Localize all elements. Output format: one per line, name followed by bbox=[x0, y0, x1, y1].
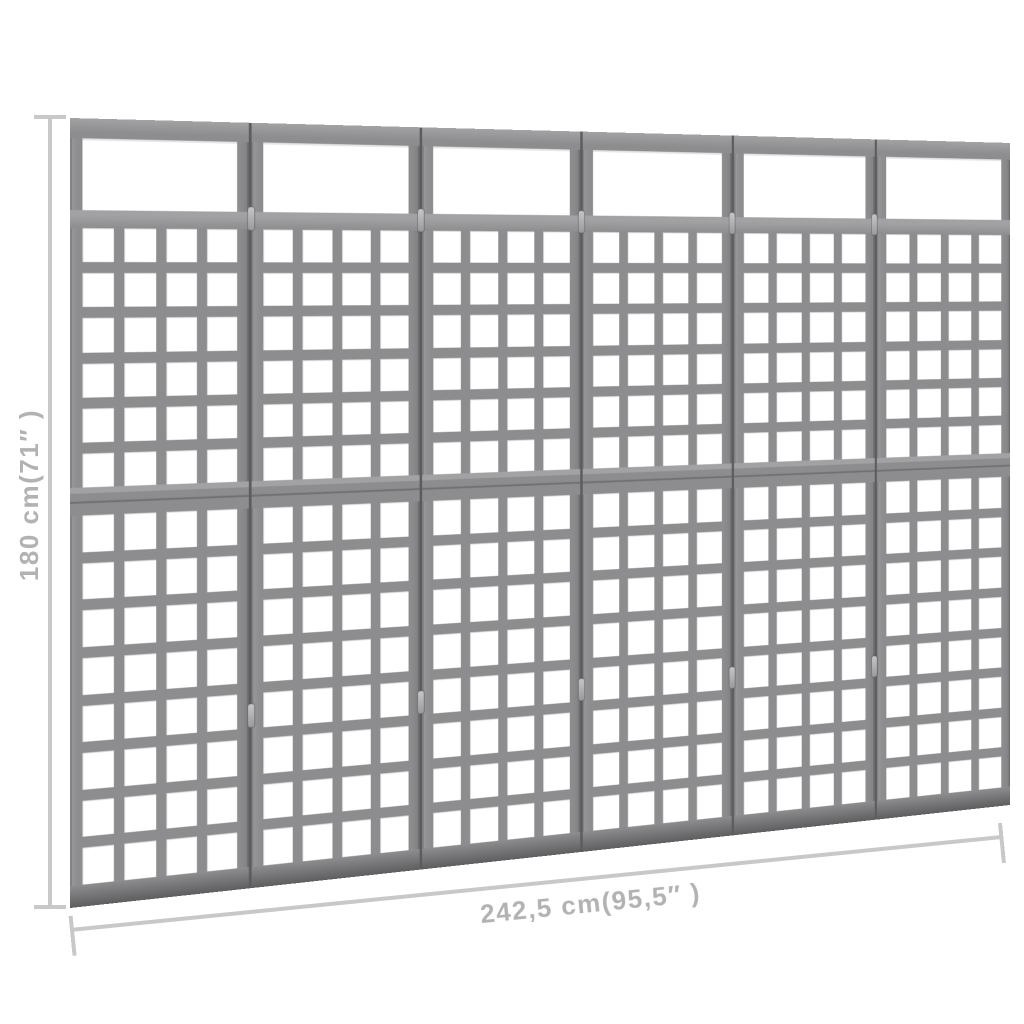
lattice-hole bbox=[842, 688, 866, 722]
lattice-hole bbox=[82, 273, 114, 307]
lattice-hole bbox=[979, 517, 1002, 549]
panel-upper-lattice bbox=[744, 233, 866, 463]
lattice-hole bbox=[697, 393, 722, 424]
lattice-hole bbox=[809, 525, 833, 558]
lattice-hole bbox=[507, 356, 534, 388]
lattice-hole bbox=[507, 315, 534, 347]
lattice-hole bbox=[979, 637, 1002, 670]
lattice-hole bbox=[697, 313, 722, 344]
lattice-hole bbox=[433, 810, 461, 847]
panel-open-section bbox=[744, 154, 866, 219]
lattice-hole bbox=[948, 235, 971, 264]
lattice-hole bbox=[628, 577, 654, 612]
lattice-hole bbox=[207, 740, 237, 778]
lattice-hole bbox=[917, 641, 940, 674]
lattice-hole bbox=[697, 233, 722, 264]
lattice-hole bbox=[433, 677, 461, 713]
lattice-hole bbox=[303, 687, 332, 724]
lattice-hole bbox=[809, 608, 833, 642]
lattice-hole bbox=[948, 349, 971, 378]
lattice-hole bbox=[125, 700, 156, 739]
lattice-hole bbox=[470, 399, 498, 431]
panel-upper-lattice bbox=[886, 234, 1001, 457]
lattice-hole bbox=[543, 756, 570, 792]
lattice-hole bbox=[593, 396, 619, 428]
lattice-hole bbox=[809, 691, 833, 725]
lattice-hole bbox=[628, 706, 654, 741]
lattice-hole bbox=[125, 653, 156, 691]
lattice-hole bbox=[777, 233, 802, 263]
lattice-hole bbox=[809, 649, 833, 683]
lattice-hole bbox=[543, 273, 570, 304]
lattice-hole bbox=[543, 314, 570, 346]
lattice-hole bbox=[380, 591, 408, 627]
panel-open-section bbox=[82, 138, 237, 211]
lattice-hole bbox=[166, 406, 197, 440]
lattice-hole bbox=[886, 428, 909, 458]
lattice-hole bbox=[342, 273, 371, 306]
lattice-hole bbox=[842, 606, 866, 639]
hinge-icon bbox=[729, 667, 734, 689]
lattice-hole bbox=[342, 402, 371, 435]
lattice-hole bbox=[543, 626, 570, 661]
lattice-hole bbox=[809, 773, 833, 807]
lattice-hole bbox=[543, 232, 570, 263]
lattice-hole bbox=[82, 408, 114, 443]
lattice-hole bbox=[470, 542, 498, 577]
lattice-hole bbox=[744, 487, 769, 520]
lattice-hole bbox=[663, 660, 689, 695]
lattice-hole bbox=[543, 539, 570, 574]
panel-rail bbox=[877, 219, 1010, 236]
lattice-hole bbox=[543, 800, 570, 836]
lattice-hole bbox=[125, 407, 156, 442]
lattice-hole bbox=[842, 729, 866, 763]
lattice-hole bbox=[342, 549, 371, 585]
lattice-hole bbox=[125, 318, 156, 352]
lattice-hole bbox=[777, 693, 802, 727]
lattice-hole bbox=[917, 479, 940, 511]
lattice-hole bbox=[628, 620, 654, 655]
panel-rail bbox=[70, 210, 249, 229]
lattice-hole bbox=[842, 483, 866, 516]
lattice-hole bbox=[303, 596, 332, 633]
lattice-hole bbox=[470, 586, 498, 622]
lattice-hole bbox=[809, 312, 833, 342]
lattice-hole bbox=[207, 786, 237, 825]
lattice-hole bbox=[470, 630, 498, 666]
lattice-hole bbox=[917, 520, 940, 552]
lattice-hole bbox=[433, 722, 461, 759]
lattice-hole bbox=[303, 823, 332, 861]
lattice-hole bbox=[166, 557, 197, 595]
panel-open-section bbox=[433, 146, 570, 215]
lattice-hole bbox=[809, 484, 833, 517]
lattice-hole bbox=[207, 694, 237, 732]
lattice-hole bbox=[593, 622, 619, 657]
lattice-hole bbox=[507, 398, 534, 430]
lattice-hole bbox=[207, 648, 237, 686]
lattice-hole bbox=[470, 498, 498, 533]
lattice-hole bbox=[263, 360, 293, 393]
lattice-hole bbox=[628, 791, 654, 827]
lattice-hole bbox=[593, 273, 619, 304]
panel-lower-lattice bbox=[744, 483, 866, 815]
lattice-hole bbox=[744, 654, 769, 688]
lattice-hole bbox=[842, 273, 866, 303]
lattice-hole bbox=[886, 562, 909, 595]
lattice-hole bbox=[663, 354, 689, 385]
lattice-hole bbox=[380, 681, 408, 718]
lattice-hole bbox=[917, 601, 940, 634]
lattice-hole bbox=[948, 311, 971, 340]
lattice-hole bbox=[886, 350, 909, 380]
lattice-hole bbox=[433, 399, 461, 432]
lattice-hole bbox=[82, 609, 114, 647]
lattice-hole bbox=[979, 757, 1002, 790]
lattice-hole bbox=[663, 313, 689, 344]
lattice-hole bbox=[263, 781, 293, 819]
lattice-hole bbox=[917, 273, 940, 302]
lattice-hole bbox=[948, 599, 971, 632]
lattice-hole bbox=[207, 833, 237, 872]
lattice-hole bbox=[380, 401, 408, 434]
lattice-hole bbox=[263, 827, 293, 865]
hinge-icon bbox=[248, 207, 254, 230]
lattice-hole bbox=[470, 231, 498, 263]
lattice-hole bbox=[470, 273, 498, 305]
lattice-hole bbox=[380, 726, 408, 763]
lattice-hole bbox=[809, 430, 833, 461]
lattice-hole bbox=[886, 725, 909, 759]
lattice-hole bbox=[303, 273, 332, 306]
panel-rail bbox=[422, 214, 580, 232]
lattice-hole bbox=[543, 438, 570, 470]
lattice-hole bbox=[507, 496, 534, 531]
hinge-icon bbox=[578, 679, 584, 701]
lattice-hole bbox=[342, 684, 371, 721]
lattice-hole bbox=[979, 387, 1002, 416]
lattice-hole bbox=[842, 565, 866, 598]
lattice-hole bbox=[663, 745, 689, 780]
panel-lower-lattice bbox=[263, 502, 408, 866]
lattice-hole bbox=[207, 449, 237, 483]
lattice-hole bbox=[663, 703, 689, 738]
lattice-hole bbox=[593, 232, 619, 263]
lattice-hole bbox=[917, 311, 940, 340]
lattice-hole bbox=[303, 230, 332, 263]
lattice-hole bbox=[125, 273, 156, 307]
lattice-hole bbox=[809, 234, 833, 264]
panel-rail bbox=[252, 212, 420, 231]
lattice-hole bbox=[166, 790, 197, 829]
lattice-hole bbox=[917, 722, 940, 755]
lattice-hole bbox=[433, 544, 461, 580]
lattice-hole bbox=[663, 618, 689, 653]
lattice-hole bbox=[842, 390, 866, 420]
trellis-panel-4 bbox=[580, 132, 731, 853]
lattice-hole bbox=[507, 803, 534, 840]
lattice-hole bbox=[166, 604, 197, 642]
lattice-hole bbox=[342, 819, 371, 857]
lattice-hole bbox=[507, 672, 534, 708]
lattice-hole bbox=[303, 359, 332, 392]
lattice-hole bbox=[380, 816, 408, 854]
panel-upper-lattice bbox=[593, 232, 722, 469]
hinge-icon bbox=[418, 209, 424, 232]
lattice-hole bbox=[697, 573, 722, 607]
lattice-hole bbox=[125, 512, 156, 550]
lattice-hole bbox=[470, 807, 498, 844]
lattice-hole bbox=[744, 570, 769, 604]
lattice-hole bbox=[82, 845, 114, 885]
lattice-hole bbox=[82, 452, 114, 487]
lattice-hole bbox=[470, 357, 498, 389]
trellis-panel-3 bbox=[420, 127, 581, 869]
lattice-hole bbox=[380, 316, 408, 349]
lattice-hole bbox=[380, 230, 408, 262]
lattice-hole bbox=[166, 273, 197, 307]
lattice-hole bbox=[628, 663, 654, 698]
lattice-hole bbox=[744, 432, 769, 463]
lattice-hole bbox=[697, 531, 722, 565]
lattice-hole bbox=[842, 312, 866, 342]
lattice-hole bbox=[842, 351, 866, 381]
lattice-hole bbox=[470, 674, 498, 710]
lattice-hole bbox=[125, 606, 156, 644]
lattice-hole bbox=[543, 713, 570, 749]
panel-upper-lattice bbox=[433, 231, 570, 475]
lattice-hole bbox=[842, 770, 866, 804]
lattice-hole bbox=[433, 357, 461, 389]
product-dimension-diagram: 180 cm(71″ ) 242,5 cm(95,5″ ) bbox=[0, 0, 1024, 1024]
lattice-hole bbox=[777, 569, 802, 603]
lattice-hole bbox=[593, 579, 619, 614]
lattice-hole bbox=[979, 311, 1002, 340]
panel-upper-lattice bbox=[263, 229, 408, 480]
lattice-hole bbox=[593, 752, 619, 788]
lattice-hole bbox=[809, 567, 833, 600]
room-divider bbox=[70, 118, 1010, 908]
lattice-hole bbox=[593, 314, 619, 345]
lattice-hole bbox=[628, 748, 654, 783]
lattice-hole bbox=[886, 644, 909, 677]
lattice-hole bbox=[979, 235, 1002, 264]
lattice-hole bbox=[263, 644, 293, 681]
lattice-hole bbox=[263, 690, 293, 728]
lattice-hole bbox=[125, 841, 156, 880]
lattice-hole bbox=[744, 313, 769, 343]
lattice-hole bbox=[628, 232, 654, 263]
lattice-hole bbox=[125, 451, 156, 486]
lattice-hole bbox=[303, 778, 332, 816]
lattice-hole bbox=[125, 747, 156, 786]
lattice-hole bbox=[663, 232, 689, 263]
lattice-hole bbox=[380, 771, 408, 808]
lattice-hole bbox=[207, 229, 237, 262]
lattice-hole bbox=[263, 403, 293, 437]
lattice-hole bbox=[744, 233, 769, 263]
lattice-hole bbox=[979, 717, 1002, 750]
lattice-hole bbox=[166, 511, 197, 548]
lattice-hole bbox=[593, 437, 619, 469]
lattice-hole bbox=[125, 228, 156, 262]
lattice-hole bbox=[82, 656, 114, 695]
panel-open-section bbox=[886, 157, 1001, 220]
hinge-icon bbox=[578, 211, 584, 233]
lattice-hole bbox=[303, 550, 332, 587]
panel-lower-lattice bbox=[82, 509, 237, 885]
lattice-hole bbox=[303, 732, 332, 770]
lattice-hole bbox=[507, 231, 534, 263]
lattice-hole bbox=[166, 229, 197, 263]
lattice-hole bbox=[303, 505, 332, 541]
lattice-hole bbox=[744, 738, 769, 773]
lattice-hole bbox=[593, 355, 619, 386]
panel-open-section bbox=[593, 150, 722, 217]
lattice-hole bbox=[433, 442, 461, 475]
lattice-hole bbox=[948, 273, 971, 302]
lattice-hole bbox=[777, 273, 802, 303]
lattice-hole bbox=[433, 500, 461, 536]
lattice-hole bbox=[777, 527, 802, 560]
lattice-hole bbox=[303, 402, 332, 435]
lattice-hole bbox=[744, 529, 769, 563]
panel-open-section bbox=[263, 142, 408, 213]
lattice-hole bbox=[917, 388, 940, 418]
lattice-hole bbox=[842, 429, 866, 459]
lattice-hole bbox=[507, 628, 534, 664]
lattice-hole bbox=[777, 652, 802, 686]
lattice-hole bbox=[842, 647, 866, 681]
width-dimension-label: 242,5 cm(95,5″ ) bbox=[479, 877, 702, 930]
lattice-hole bbox=[433, 273, 461, 305]
lattice-hole bbox=[809, 273, 833, 303]
hinge-icon bbox=[418, 691, 424, 714]
lattice-hole bbox=[342, 774, 371, 812]
lattice-hole bbox=[663, 788, 689, 823]
panel-lower-lattice bbox=[593, 489, 722, 831]
lattice-hole bbox=[303, 316, 332, 349]
lattice-hole bbox=[380, 636, 408, 673]
lattice-hole bbox=[433, 766, 461, 803]
lattice-hole bbox=[82, 514, 114, 552]
panel-rail bbox=[734, 217, 875, 234]
lattice-hole bbox=[433, 315, 461, 347]
lattice-hole bbox=[82, 798, 114, 837]
lattice-hole bbox=[917, 234, 940, 263]
lattice-hole bbox=[628, 354, 654, 385]
lattice-hole bbox=[342, 594, 371, 631]
lattice-hole bbox=[342, 230, 371, 263]
lattice-hole bbox=[663, 533, 689, 567]
lattice-hole bbox=[663, 434, 689, 465]
lattice-hole bbox=[777, 735, 802, 769]
lattice-hole bbox=[82, 363, 114, 398]
lattice-hole bbox=[886, 684, 909, 717]
lattice-hole bbox=[207, 405, 237, 439]
lattice-hole bbox=[207, 555, 237, 592]
lattice-hole bbox=[948, 679, 971, 712]
hinge-icon bbox=[872, 214, 877, 235]
hinge-icon bbox=[729, 213, 734, 234]
lattice-hole bbox=[507, 439, 534, 471]
lattice-hole bbox=[125, 794, 156, 833]
lattice-hole bbox=[663, 273, 689, 304]
lattice-hole bbox=[979, 557, 1002, 589]
lattice-hole bbox=[342, 359, 371, 392]
lattice-hole bbox=[777, 431, 802, 462]
lattice-hole bbox=[628, 436, 654, 468]
lattice-hole bbox=[697, 700, 722, 735]
lattice-hole bbox=[263, 447, 293, 481]
panel-rail bbox=[583, 215, 732, 233]
lattice-hole bbox=[697, 785, 722, 820]
panel-upper-lattice bbox=[82, 228, 237, 487]
lattice-hole bbox=[628, 491, 654, 525]
lattice-hole bbox=[777, 485, 802, 518]
lattice-hole bbox=[886, 766, 909, 800]
trellis-panel-6 bbox=[875, 139, 1010, 819]
lattice-hole bbox=[303, 446, 332, 480]
lattice-hole bbox=[948, 639, 971, 672]
lattice-hole bbox=[380, 502, 408, 538]
lattice-hole bbox=[507, 540, 534, 575]
panel-lower-lattice bbox=[433, 495, 570, 848]
lattice-hole bbox=[663, 394, 689, 425]
lattice-hole bbox=[263, 229, 293, 262]
lattice-hole bbox=[744, 352, 769, 383]
height-dimension-label: 180 cm(71″ ) bbox=[12, 345, 46, 645]
lattice-hole bbox=[744, 780, 769, 815]
lattice-hole bbox=[628, 395, 654, 426]
lattice-hole bbox=[886, 389, 909, 419]
lattice-hole bbox=[777, 391, 802, 422]
lattice-hole bbox=[207, 361, 237, 395]
lattice-hole bbox=[166, 744, 197, 783]
lattice-hole bbox=[886, 603, 909, 636]
lattice-hole bbox=[342, 503, 371, 539]
lattice-hole bbox=[593, 708, 619, 744]
lattice-hole bbox=[948, 559, 971, 591]
lattice-hole bbox=[507, 716, 534, 752]
lattice-hole bbox=[886, 481, 909, 513]
lattice-hole bbox=[342, 639, 371, 676]
lattice-hole bbox=[543, 397, 570, 429]
lattice-hole bbox=[886, 521, 909, 554]
lattice-hole bbox=[263, 736, 293, 774]
lattice-hole bbox=[207, 601, 237, 639]
lattice-hole bbox=[663, 490, 689, 524]
lattice-hole bbox=[82, 750, 114, 789]
lattice-hole bbox=[543, 669, 570, 705]
lattice-hole bbox=[125, 559, 156, 597]
trellis-panel-2 bbox=[249, 123, 420, 889]
lattice-hole bbox=[507, 759, 534, 795]
lattice-hole bbox=[263, 273, 293, 306]
lattice-hole bbox=[948, 518, 971, 550]
lattice-hole bbox=[777, 610, 802, 644]
lattice-hole bbox=[593, 536, 619, 571]
lattice-hole bbox=[166, 650, 197, 688]
lattice-hole bbox=[697, 658, 722, 693]
lattice-hole bbox=[697, 615, 722, 649]
lattice-hole bbox=[744, 696, 769, 730]
lattice-hole bbox=[744, 612, 769, 646]
lattice-hole bbox=[380, 443, 408, 476]
lattice-hole bbox=[125, 362, 156, 396]
lattice-hole bbox=[380, 273, 408, 305]
